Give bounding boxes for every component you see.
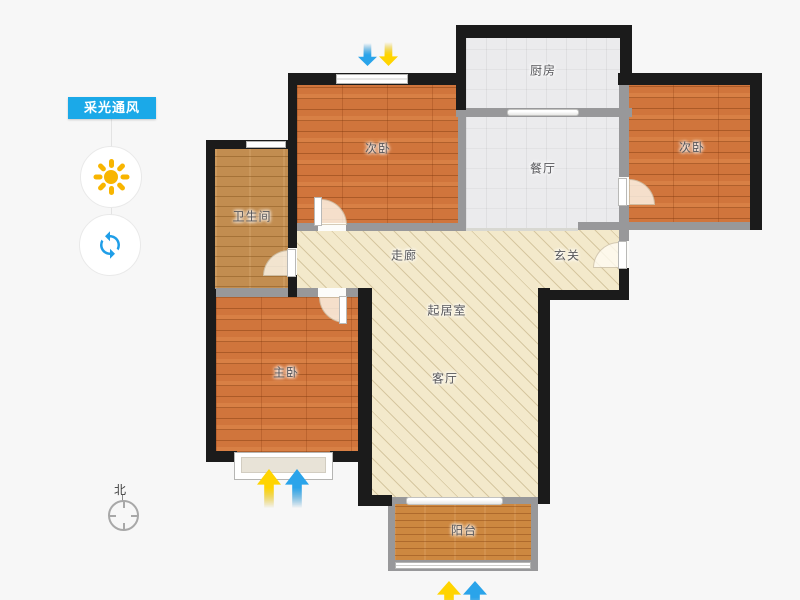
room-label-sitting: 起居室 [427,302,466,319]
room-label-dining: 餐厅 [530,160,556,177]
wall-segment [358,495,392,506]
sun-ray [97,163,107,173]
wall-segment [288,73,297,145]
room-label-balcony: 阳台 [451,522,477,539]
wall-segment [206,289,216,462]
floorplan-viewer: 采光通风 北 [0,0,800,600]
window [336,74,408,84]
wall-segment [750,73,762,230]
wall-segment [206,288,297,297]
wall-segment [618,73,762,85]
refresh-icon [95,230,125,260]
room-label-living: 客厅 [432,370,458,387]
wall-segment [456,25,632,38]
sliding-door-balcony [406,497,503,505]
window [246,141,286,148]
wall-segment [206,140,215,297]
room-label-bedroom-top-right: 次卧 [679,139,705,156]
sun-ray [116,163,126,173]
window [395,562,531,569]
wall-segment [358,288,372,506]
door-leaf [618,178,627,206]
door-leaf [287,249,296,277]
wall-segment [531,500,538,568]
light-arrow-up-icon [437,581,461,600]
door-leaf [314,197,322,226]
lighting-ventilation-tag: 采光通风 [68,97,156,119]
room-label-bedroom-top-left: 次卧 [365,140,391,157]
wall-segment [388,500,395,568]
wall-segment [538,288,550,504]
room-label-foyer: 玄关 [554,247,580,264]
room-label-corridor: 走廊 [391,247,417,264]
compass-north-label: 北 [114,481,126,498]
sun-ray [93,175,102,180]
wall-segment [456,25,466,110]
wall-segment [619,81,629,177]
wall-segment [206,451,237,462]
sunlight-button[interactable] [80,146,142,208]
sliding-door-kitchen [507,109,579,116]
room-label-bathroom: 卫生间 [232,208,271,225]
bay-window-inner [241,457,326,473]
wall-segment [288,145,297,248]
wall-segment [578,222,620,230]
dining-corridor-threshold [466,228,578,231]
wall-segment [346,223,466,231]
sun-core [104,170,118,184]
ventilation-button[interactable] [79,214,141,276]
sun-ray [97,182,107,192]
wall-segment [458,108,466,231]
compass-icon [108,500,139,531]
wall-segment [619,222,762,230]
room-label-kitchen: 厨房 [530,62,556,79]
door-leaf [618,241,627,269]
room-floor-bedroom-top-right [628,85,750,230]
sun-ray [120,175,129,180]
sun-ray [116,182,126,192]
sun-ray [109,186,114,195]
wind-arrow-up-icon [463,581,487,600]
wind-arrow-down-icon [358,43,377,66]
wall-segment [619,268,629,300]
sun-ray [109,159,114,168]
room-floor-living [372,288,538,498]
wall-segment [538,290,628,300]
room-label-master: 主卧 [273,364,299,381]
door-leaf [339,296,347,324]
light-arrow-down-icon [379,42,398,66]
wall-segment [288,275,297,297]
